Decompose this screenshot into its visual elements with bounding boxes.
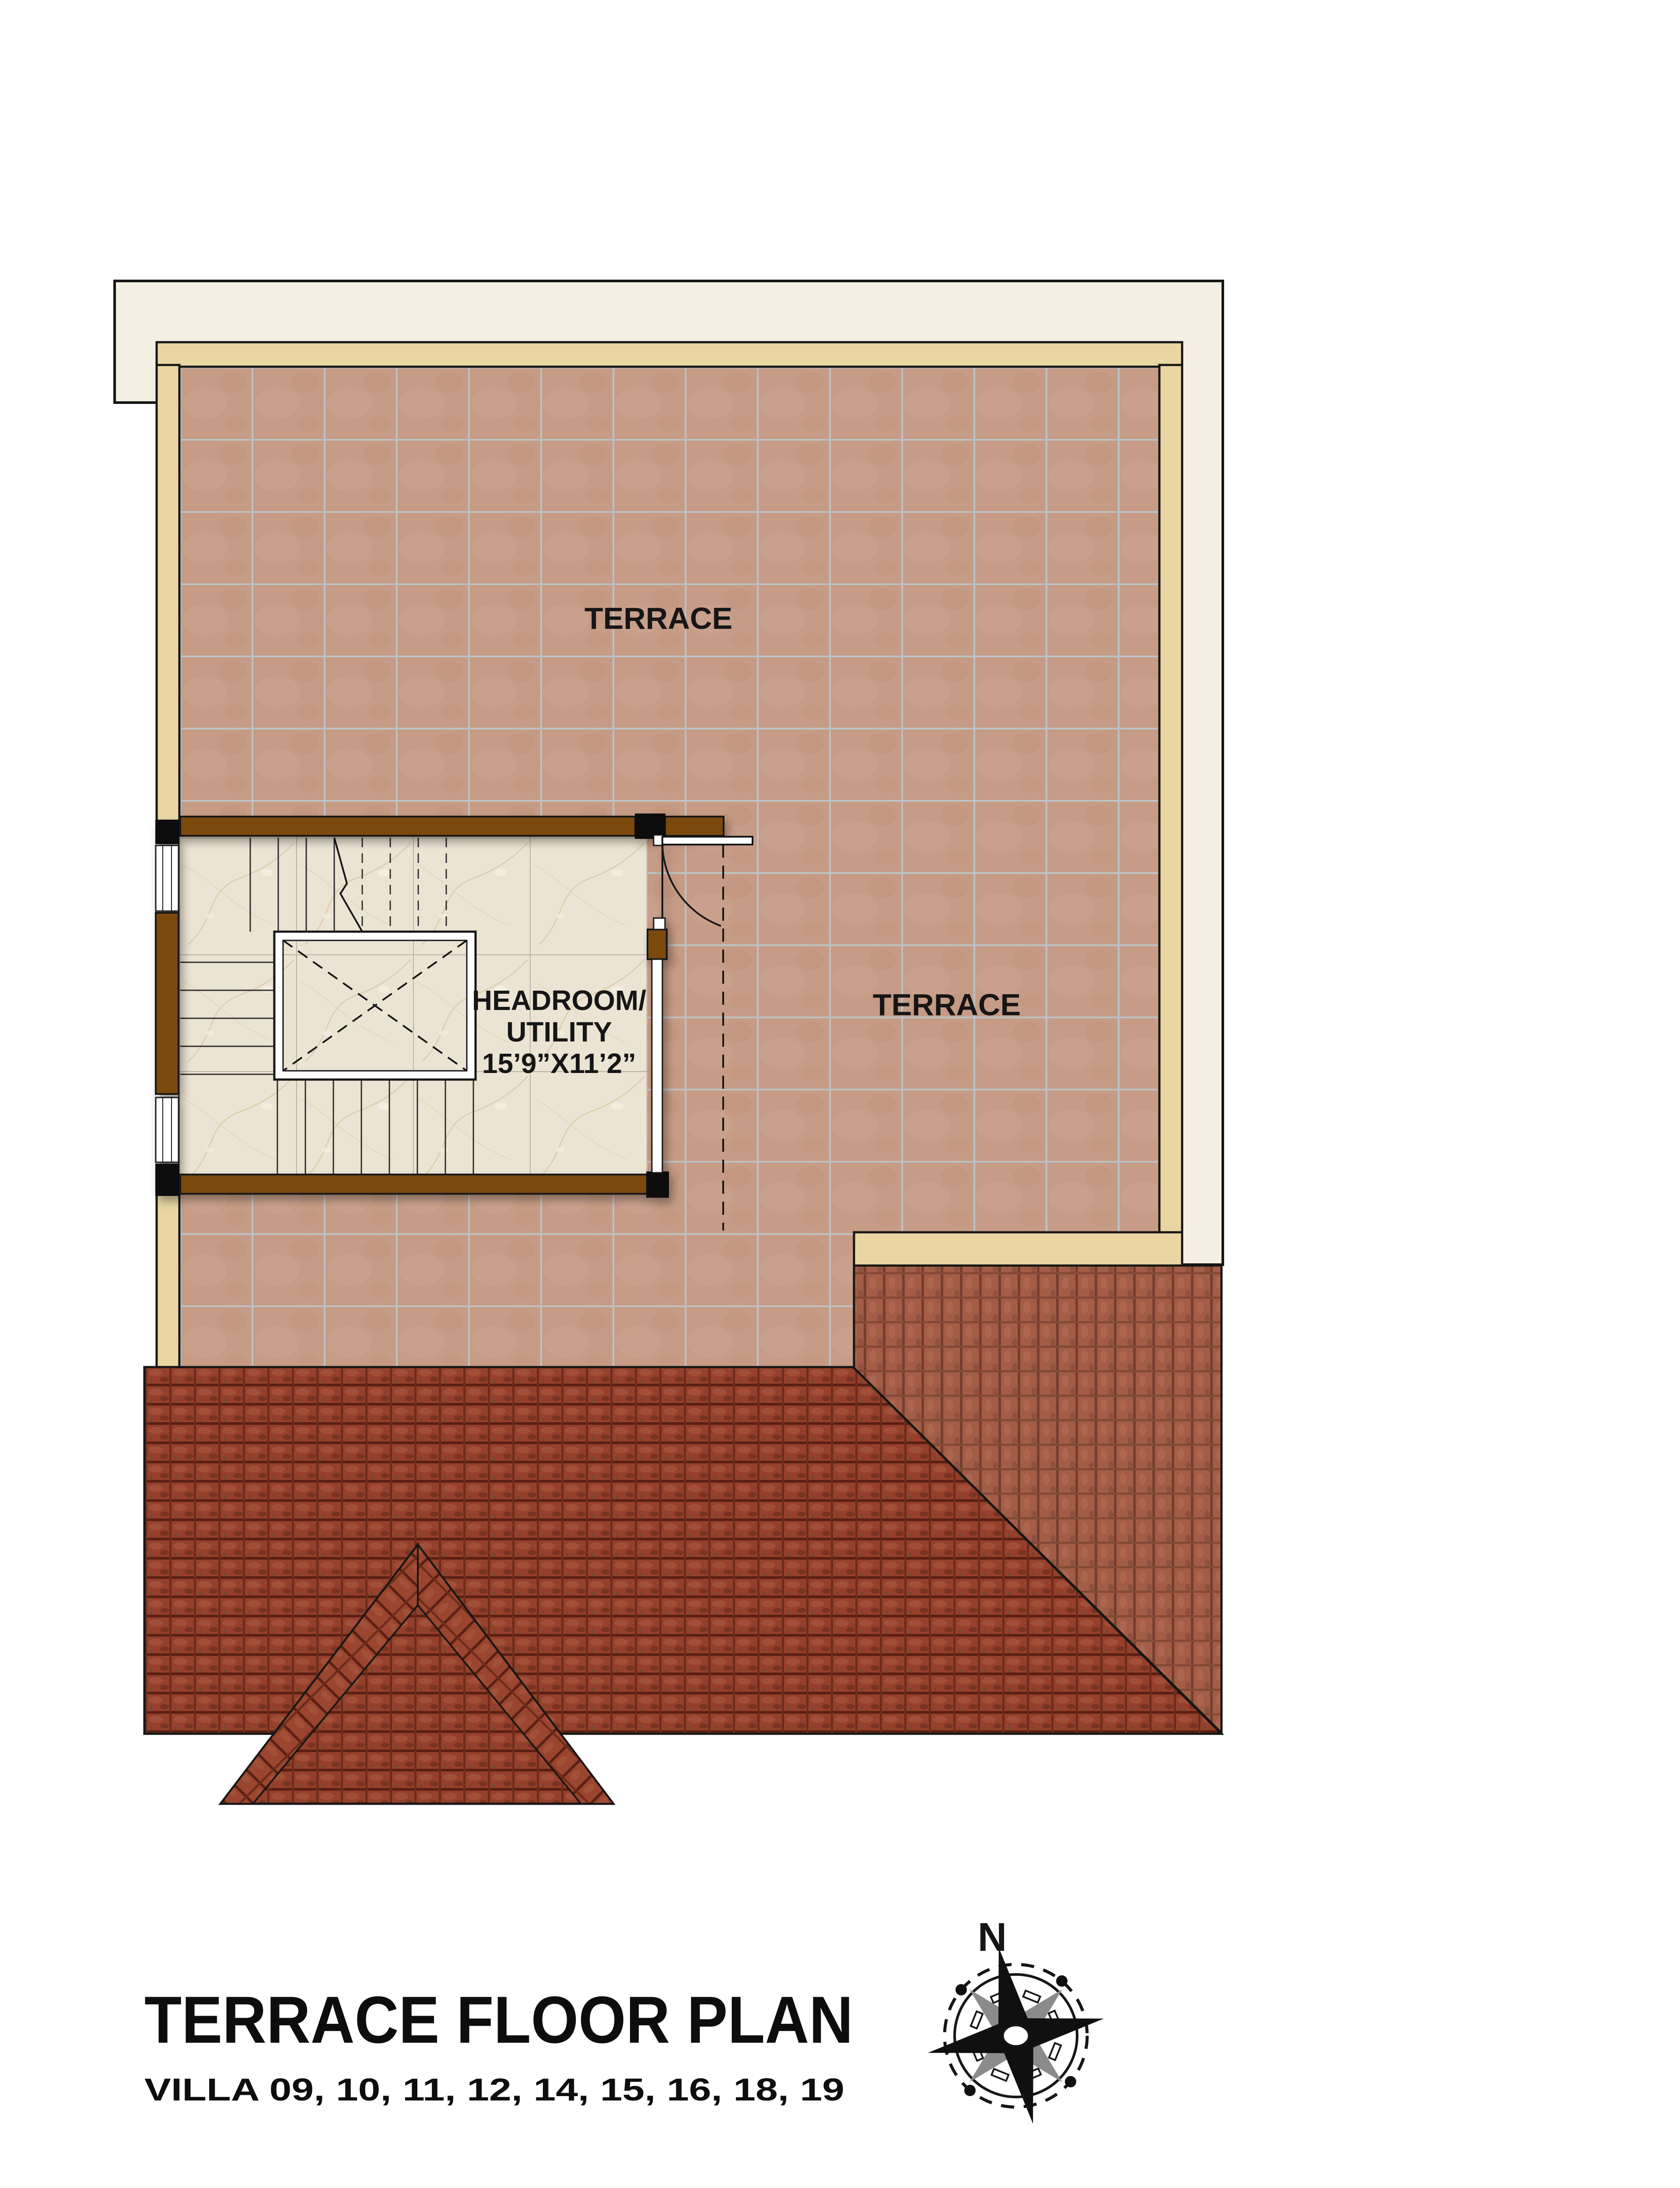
window-left-lower [156,1098,178,1162]
column-block-right-bottom [647,1172,668,1197]
page-subtitle: VILLA 09, 10, 11, 12, 14, 15, 16, 18, 19 [144,2072,844,2107]
floor-plan-svg: TERRACE TERRACE HEADROOM/ UTILITY 15’9”X… [0,0,1680,2188]
title-block: TERRACE FLOOR PLAN VILLA 09, 10, 11, 12,… [144,1983,853,2107]
door-leaf [662,837,752,845]
parapet-top [157,342,1182,367]
label-terrace-top: TERRACE [584,601,732,635]
terrace-floor-plan-page: TERRACE TERRACE HEADROOM/ UTILITY 15’9”X… [0,0,1680,2188]
parapet-left-upper [157,365,179,822]
parapet-bottom-right [852,1232,1182,1266]
wall-top [180,817,635,836]
window-right [652,959,662,1173]
wall-bottom [180,1175,647,1194]
parapet-right [1159,365,1182,1233]
window-left-upper [156,845,178,911]
column-block-left-bottom [156,1164,178,1196]
stairwell-opening [274,932,476,1080]
compass-north-label: N [978,1915,1007,1960]
compass-hub [1003,2025,1029,2046]
slab-left-mask [105,403,160,1524]
wall-right-column [647,929,667,959]
window-sill-block [654,918,665,929]
parapet-left-lower [157,1181,179,1372]
wall-left-mid [156,913,178,1094]
wall-top-right [665,817,724,836]
compass-rose: N [911,1915,1121,2141]
column-block-left-top [156,820,178,844]
label-headroom-line3: 15’9”X11’2” [482,1048,636,1079]
label-terrace-right: TERRACE [873,988,1021,1022]
label-headroom-line1: HEADROOM/ [472,985,646,1016]
stair-headroom-block [156,814,752,1231]
page-title: TERRACE FLOOR PLAN [144,1983,853,2057]
label-headroom-line2: UTILITY [506,1016,612,1048]
